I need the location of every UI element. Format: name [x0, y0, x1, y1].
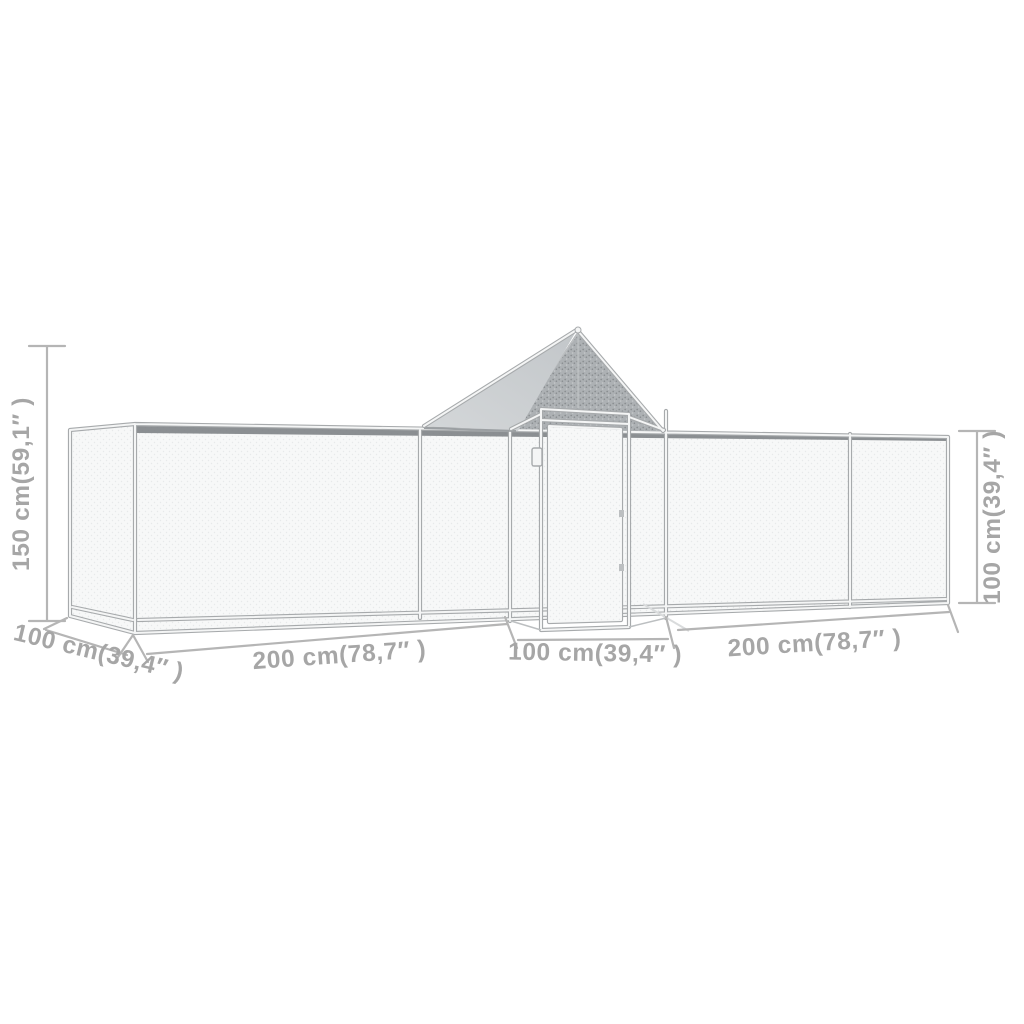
coop-diagram-svg: 150 cm(59,1″ ) 100 cm(39,4″ ) 100 cm(39,… [0, 0, 1024, 1024]
ridge-cap [575, 327, 581, 333]
left-end-mesh-panel [70, 424, 135, 633]
width-center-label: 100 cm(39,4″ ) [508, 638, 682, 668]
height-right-label: 100 cm(39,4″ ) [979, 430, 1006, 604]
door-latch [532, 448, 542, 466]
door-mesh-panel [549, 427, 621, 622]
door-hinge-top [619, 510, 624, 517]
door-hinge-bottom [619, 564, 624, 571]
height-left-label: 150 cm(59,1″ ) [8, 397, 35, 571]
width-right-label: 200 cm(78,7″ ) [727, 625, 902, 663]
chicken-coop-run [70, 327, 948, 633]
width-left-label: 200 cm(78,7″ ) [252, 636, 428, 675]
product-dimension-diagram: 150 cm(59,1″ ) 100 cm(39,4″ ) 100 cm(39,… [0, 0, 1024, 1024]
